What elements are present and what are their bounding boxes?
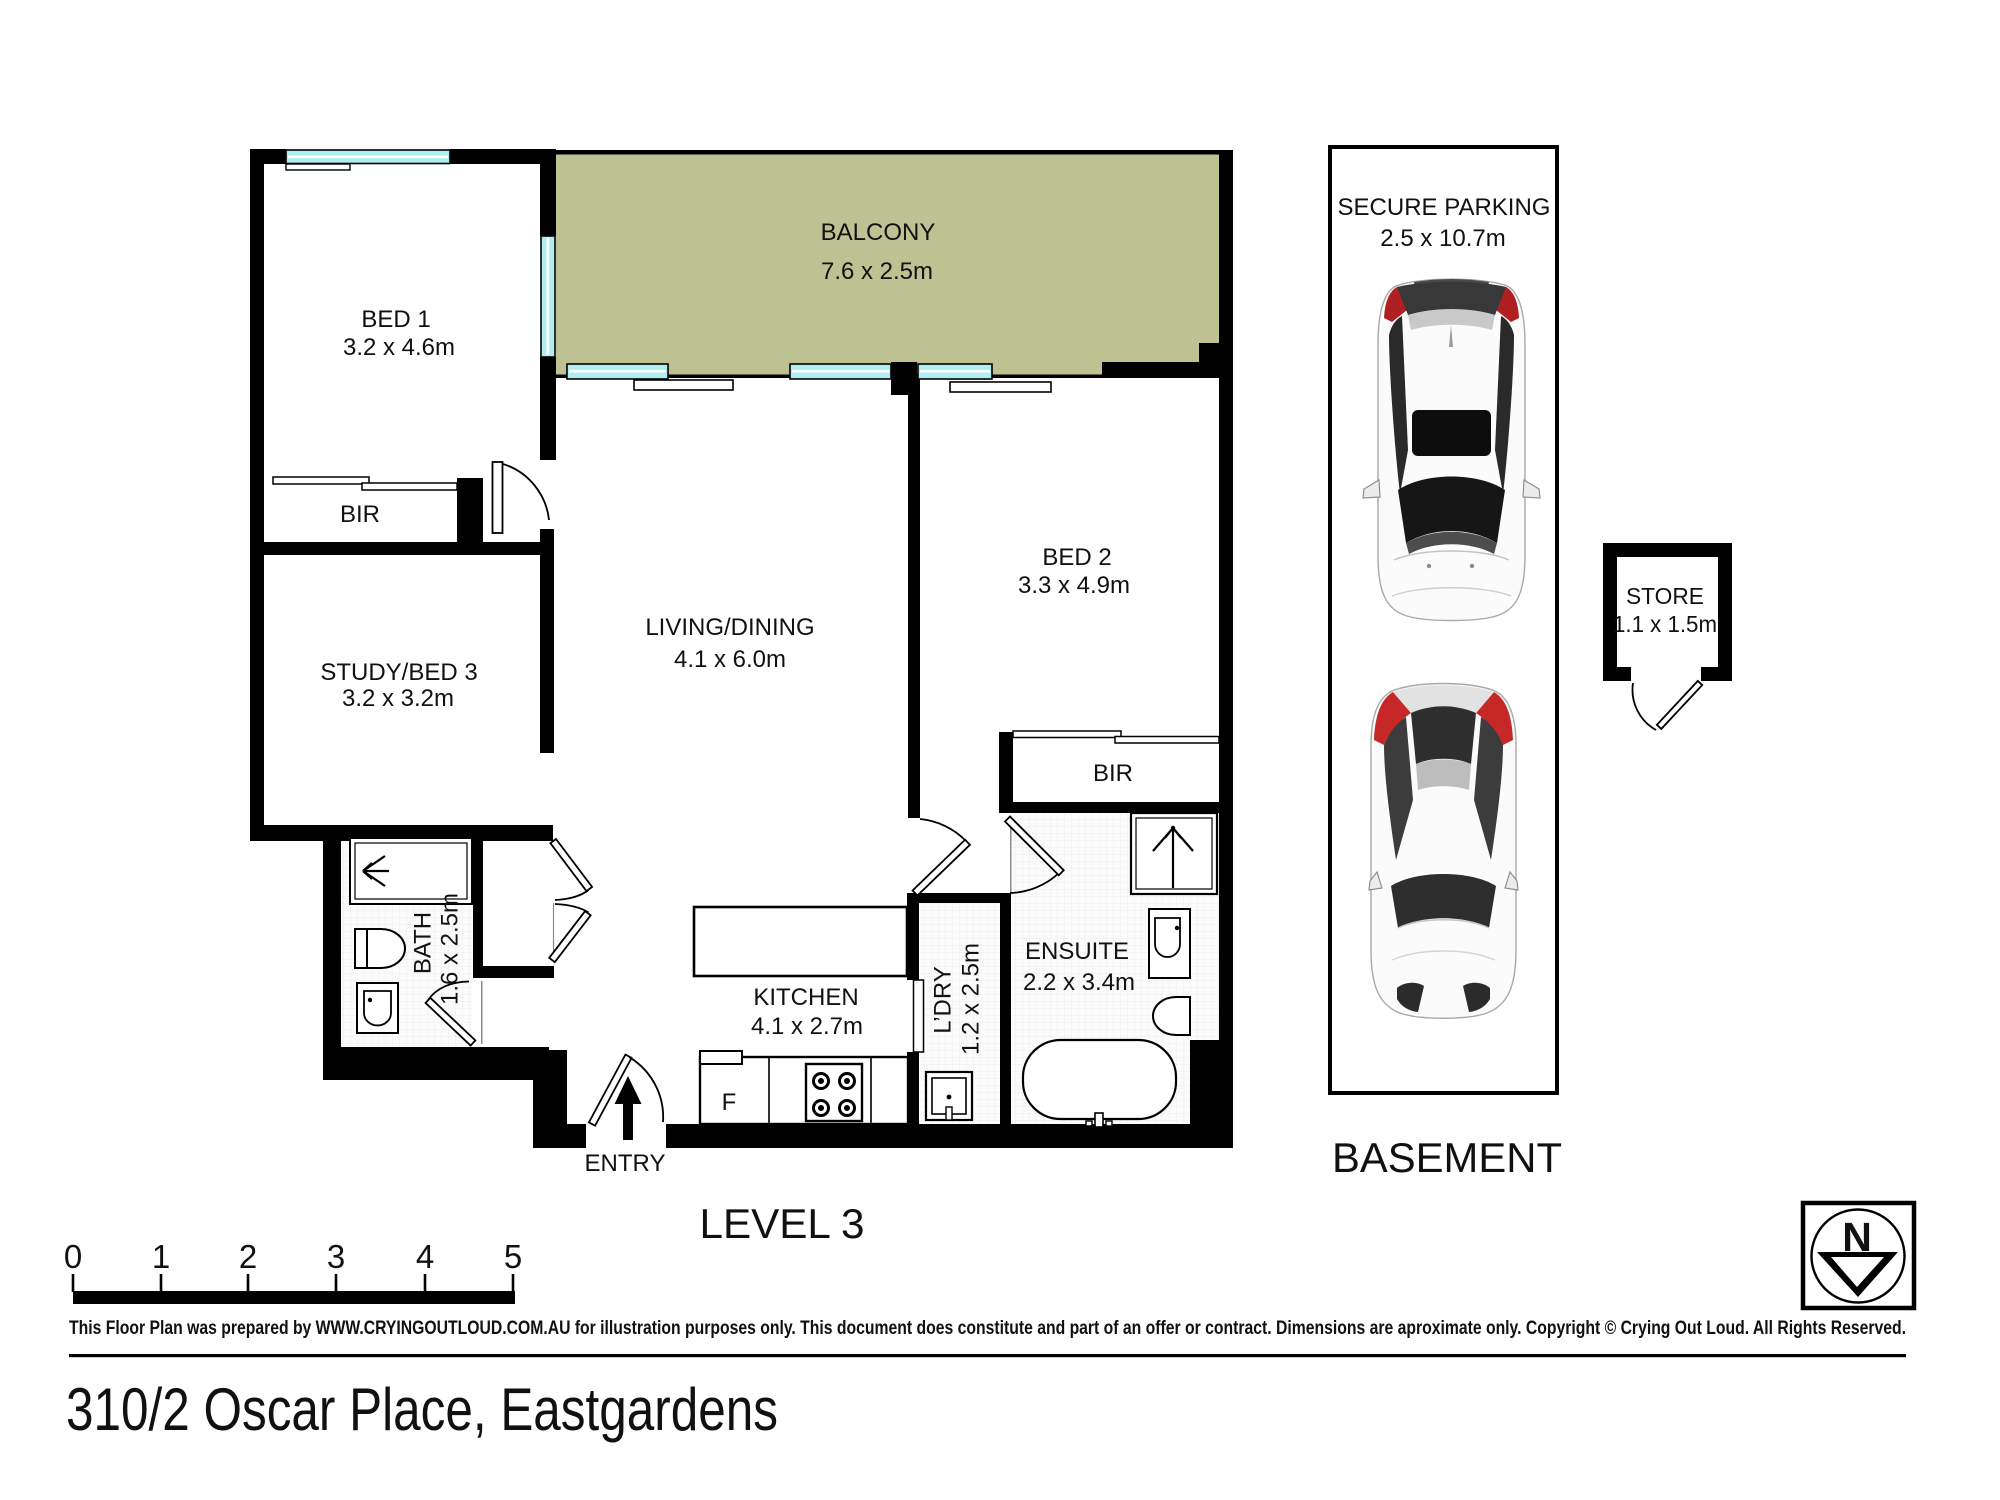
svg-text:ENTRY: ENTRY: [585, 1150, 666, 1177]
svg-text:4: 4: [416, 1238, 434, 1275]
svg-text:1.2 x 2.5m: 1.2 x 2.5m: [957, 943, 984, 1055]
svg-text:1.6 x 2.5m: 1.6 x 2.5m: [436, 893, 463, 1005]
svg-text:3.2 x 3.2m: 3.2 x 3.2m: [342, 685, 454, 712]
svg-text:3: 3: [327, 1238, 345, 1275]
svg-text:STORE: STORE: [1626, 583, 1704, 609]
svg-text:BALCONY: BALCONY: [821, 219, 936, 246]
svg-text:LEVEL 3: LEVEL 3: [700, 1200, 865, 1247]
svg-text:BASEMENT: BASEMENT: [1332, 1134, 1562, 1181]
svg-text:BIR: BIR: [340, 501, 380, 528]
svg-text:1.1 x 1.5m: 1.1 x 1.5m: [1613, 611, 1717, 637]
svg-text:2: 2: [239, 1238, 257, 1275]
svg-text:2.2 x 3.4m: 2.2 x 3.4m: [1023, 969, 1135, 996]
svg-text:STUDY/BED 3: STUDY/BED 3: [320, 659, 477, 686]
svg-text:4.1 x 6.0m: 4.1 x 6.0m: [674, 646, 786, 673]
svg-text:SECURE PARKING: SECURE PARKING: [1338, 194, 1551, 221]
svg-text:This Floor Plan was prepared b: This Floor Plan was prepared by WWW.CRYI…: [69, 1318, 1906, 1339]
svg-text:LIVING/DINING: LIVING/DINING: [645, 614, 814, 641]
svg-text:7.6 x 2.5m: 7.6 x 2.5m: [821, 258, 933, 285]
svg-text:3.3 x 4.9m: 3.3 x 4.9m: [1018, 572, 1130, 599]
svg-text:KITCHEN: KITCHEN: [753, 984, 858, 1011]
svg-text:0: 0: [64, 1238, 82, 1275]
svg-text:L’DRY: L’DRY: [929, 966, 956, 1034]
svg-text:F: F: [722, 1089, 737, 1116]
svg-text:310/2 Oscar Place, Eastgardens: 310/2 Oscar Place, Eastgardens: [66, 1376, 778, 1443]
svg-text:1: 1: [152, 1238, 170, 1275]
svg-text:4.1 x 2.7m: 4.1 x 2.7m: [751, 1013, 863, 1040]
svg-text:3.2 x 4.6m: 3.2 x 4.6m: [343, 334, 455, 361]
svg-text:5: 5: [504, 1238, 522, 1275]
svg-text:BATH: BATH: [409, 912, 436, 974]
svg-text:2.5 x 10.7m: 2.5 x 10.7m: [1380, 225, 1505, 252]
svg-text:BIR: BIR: [1093, 760, 1133, 787]
svg-text:BED 2: BED 2: [1042, 544, 1111, 571]
svg-text:ENSUITE: ENSUITE: [1025, 938, 1129, 965]
svg-text:BED 1: BED 1: [361, 306, 430, 333]
